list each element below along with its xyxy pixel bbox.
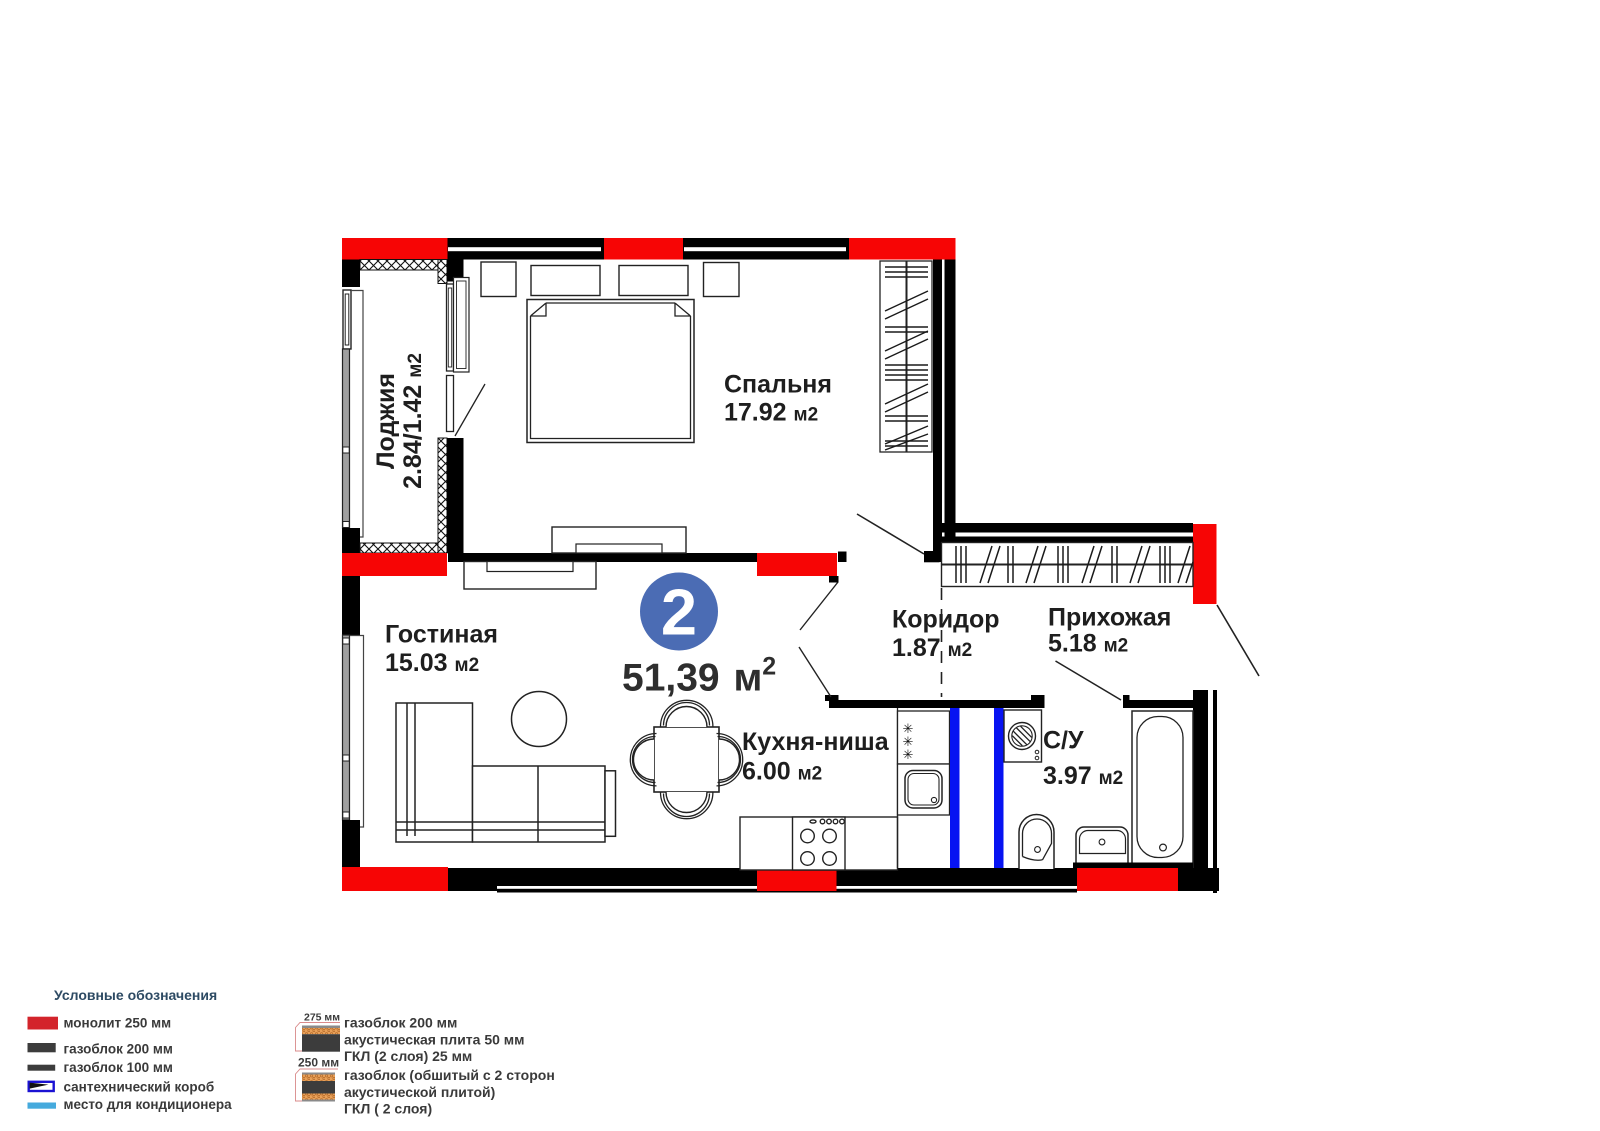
svg-text:акустическая плита 50 мм: акустическая плита 50 мм [344, 1032, 525, 1048]
svg-text:ГКЛ (2 слоя) 25 мм: ГКЛ (2 слоя) 25 мм [344, 1048, 472, 1064]
svg-text:место для кондиционера: место для кондиционера [64, 1097, 233, 1112]
svg-text:акустической плитой): акустической плитой) [344, 1084, 495, 1100]
svg-text:Условные обозначения: Условные обозначения [54, 987, 217, 1003]
svg-text:2.84/1.42 м2: 2.84/1.42 м2 [399, 353, 427, 489]
svg-text:Гостиная: Гостиная [385, 621, 498, 649]
svg-text:Прихожая: Прихожая [1048, 604, 1171, 632]
svg-text:ГКЛ ( 2 слоя): ГКЛ ( 2 слоя) [344, 1101, 432, 1117]
svg-text:250 мм: 250 мм [298, 1056, 339, 1070]
svg-text:✳: ✳ [903, 747, 914, 762]
svg-text:Кухня-ниша: Кухня-ниша [742, 728, 890, 756]
svg-text:51,39 м2: 51,39 м2 [622, 653, 776, 700]
svg-text:2: 2 [661, 576, 697, 649]
svg-text:газоблок 200 мм: газоблок 200 мм [344, 1015, 457, 1031]
svg-text:275 мм: 275 мм [304, 1012, 340, 1024]
svg-text:3.97 м2: 3.97 м2 [1043, 762, 1123, 790]
svg-text:5.18 м2: 5.18 м2 [1048, 630, 1128, 658]
svg-text:С/У: С/У [1043, 726, 1084, 754]
svg-text:газоблок (обшитый с 2 сторон: газоблок (обшитый с 2 сторон [344, 1067, 555, 1083]
svg-text:газоблок 200 мм: газоблок 200 мм [64, 1042, 173, 1057]
svg-text:монолит 250 мм: монолит 250 мм [64, 1016, 172, 1031]
svg-text:Лоджия: Лоджия [372, 373, 400, 469]
svg-text:1.87 м2: 1.87 м2 [892, 634, 972, 662]
svg-text:сантехнический короб: сантехнический короб [64, 1080, 215, 1095]
svg-text:газоблок 100 мм: газоблок 100 мм [64, 1060, 173, 1075]
svg-text:Спальня: Спальня [724, 371, 832, 399]
svg-text:Коридор: Коридор [892, 606, 1000, 634]
